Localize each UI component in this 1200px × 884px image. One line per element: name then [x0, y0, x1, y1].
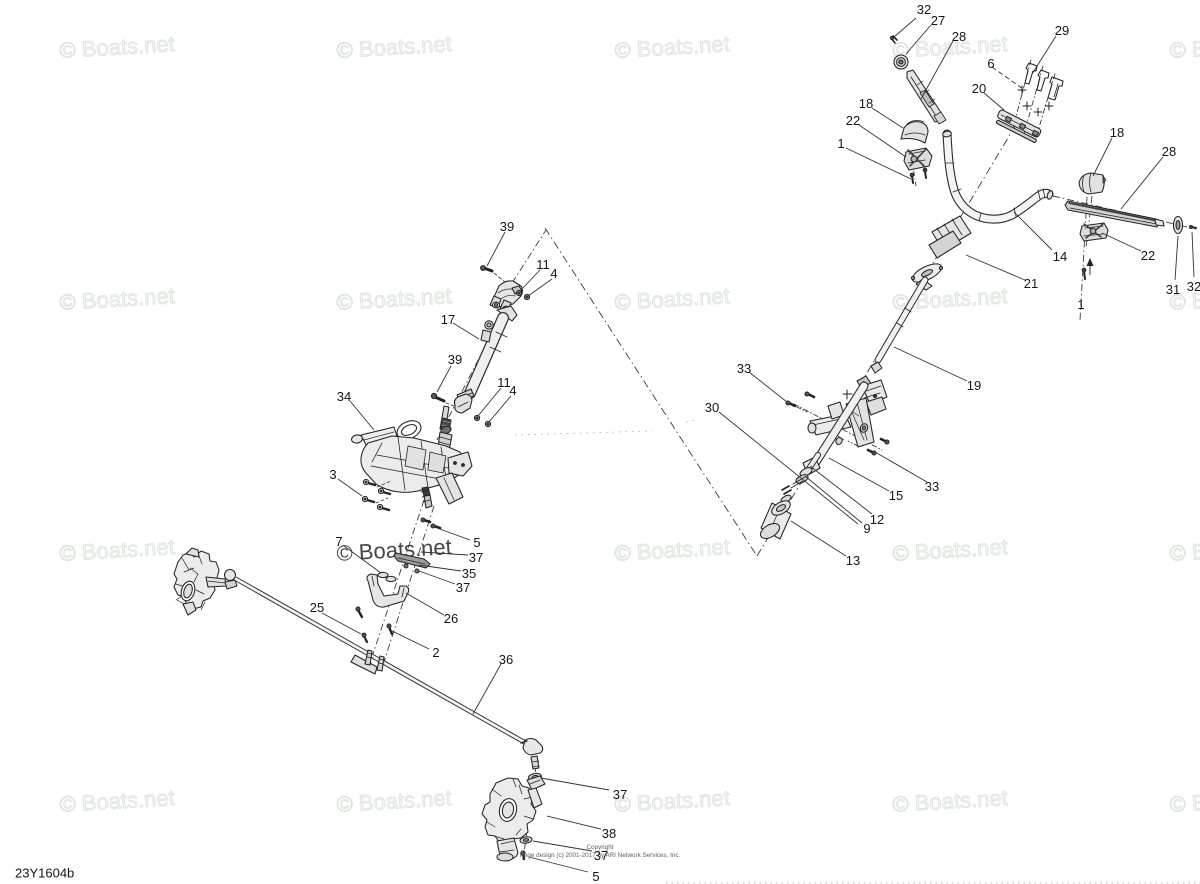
svg-text:2: 2: [432, 645, 439, 660]
svg-text:39: 39: [500, 219, 514, 234]
svg-text:4: 4: [550, 266, 557, 281]
svg-text:23Y1604b: 23Y1604b: [15, 866, 74, 881]
svg-text:20: 20: [972, 81, 986, 96]
svg-text:9: 9: [863, 521, 870, 536]
svg-text:26: 26: [444, 611, 458, 626]
svg-text:7: 7: [335, 534, 342, 549]
svg-text:37: 37: [469, 550, 483, 565]
svg-text:33: 33: [925, 479, 939, 494]
svg-text:37: 37: [456, 580, 470, 595]
svg-text:5: 5: [592, 869, 599, 884]
svg-text:11: 11: [536, 257, 550, 272]
svg-text:6: 6: [987, 56, 994, 71]
svg-text:14: 14: [1053, 249, 1067, 264]
svg-text:17: 17: [441, 312, 455, 327]
svg-text:Page design (c) 2001-2017 by A: Page design (c) 2001-2017 by ARI Network…: [520, 852, 681, 859]
svg-text:21: 21: [1024, 276, 1038, 291]
svg-text:34: 34: [337, 389, 351, 404]
svg-text:1: 1: [1077, 297, 1084, 312]
svg-text:12: 12: [870, 512, 884, 527]
svg-text:33: 33: [737, 361, 751, 376]
svg-text:18: 18: [1110, 125, 1124, 140]
svg-text:15: 15: [889, 488, 903, 503]
svg-text:13: 13: [846, 553, 860, 568]
svg-text:22: 22: [1141, 248, 1155, 263]
svg-text:39: 39: [448, 352, 462, 367]
svg-text:32: 32: [917, 2, 931, 17]
svg-text:25: 25: [310, 600, 324, 615]
svg-text:19: 19: [967, 378, 981, 393]
svg-text:32: 32: [1187, 279, 1200, 294]
svg-text:1: 1: [837, 136, 844, 151]
svg-text:31: 31: [1166, 282, 1180, 297]
svg-text:28: 28: [952, 29, 966, 44]
svg-text:27: 27: [931, 13, 945, 28]
svg-text:4: 4: [509, 383, 516, 398]
svg-text:38: 38: [602, 826, 616, 841]
svg-text:36: 36: [499, 652, 513, 667]
svg-text:35: 35: [462, 566, 476, 581]
svg-text:29: 29: [1055, 23, 1069, 38]
svg-text:37: 37: [613, 787, 627, 802]
svg-text:5: 5: [473, 535, 480, 550]
svg-text:3: 3: [329, 467, 336, 482]
svg-text:28: 28: [1162, 144, 1176, 159]
svg-text:18: 18: [859, 96, 873, 111]
svg-text:30: 30: [705, 400, 719, 415]
svg-text:Copyright: Copyright: [587, 844, 614, 851]
svg-text:22: 22: [846, 113, 860, 128]
